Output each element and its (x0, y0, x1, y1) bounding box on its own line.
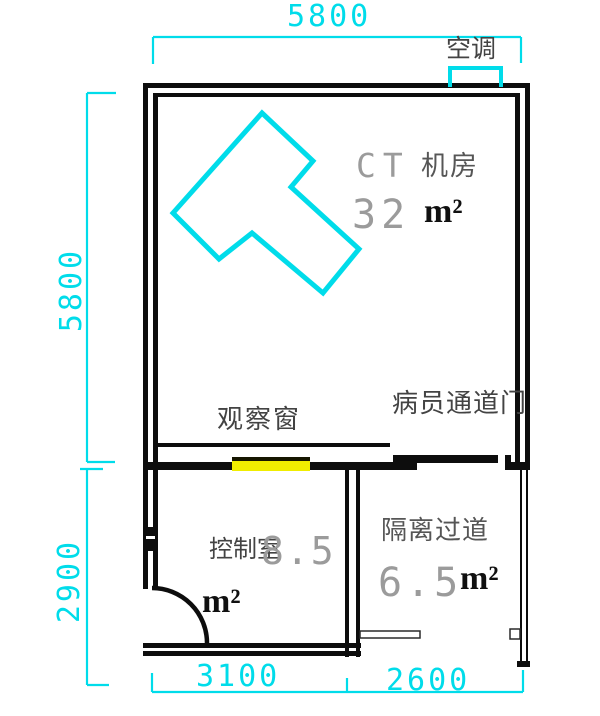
ct-room-area-unit: m² (424, 195, 463, 229)
floor-plan: 5800 5800 2900 3100 2600 空调 CT 机房 32 m² … (0, 0, 600, 716)
corridor-area-value: 6.5 (378, 563, 462, 603)
wall-top-outer (143, 83, 530, 88)
observation-window-glass (232, 461, 310, 471)
wall-control-corridor-left-line (345, 466, 349, 657)
ct-machine-outline (173, 113, 359, 293)
wall-divider-top-line (153, 443, 390, 447)
corridor-area-unit: m² (460, 562, 499, 596)
ct-room-area-value: 32 (352, 195, 410, 235)
ct-room-name-cn: 机房 (421, 153, 479, 180)
dim-line-left-upper (87, 93, 116, 462)
corridor-name: 隔离过道 (381, 517, 489, 543)
dim-bottom-left-value: 3100 (196, 662, 280, 692)
air-conditioner-label: 空调 (446, 37, 496, 62)
wall-bottom-inner (143, 651, 361, 656)
corridor-wall-inner-line (526, 470, 528, 663)
observation-window (232, 457, 310, 471)
wall-bottom-outer (143, 643, 361, 648)
wall-corner-bracket (505, 462, 530, 470)
control-room-door-arc (152, 588, 207, 643)
left-wall-marker-gap (146, 536, 155, 539)
dim-left-lower-value: 2900 (55, 519, 85, 643)
wall-left-inner (153, 93, 158, 589)
corridor-wall-end-cap (517, 661, 530, 667)
dim-left-upper-value: 5800 (57, 228, 87, 352)
corridor-wall-notch (510, 629, 520, 639)
dim-bottom-right-value: 2600 (386, 666, 470, 696)
patient-door-label: 病员通道门 (392, 390, 527, 416)
observation-window-frame-line (232, 457, 310, 461)
ct-room-name-en: CT (356, 149, 410, 182)
wall-left-outer (143, 83, 148, 589)
control-room-area-unit: m² (202, 585, 241, 619)
patient-door-leaf (393, 455, 498, 463)
control-room-area-value: 8.5 (261, 532, 336, 570)
observation-window-label: 观察窗 (217, 406, 301, 432)
wall-control-corridor-right-line (356, 466, 360, 657)
wall-top-inner (153, 93, 520, 97)
plan-drawing (0, 0, 600, 716)
corridor-threshold (360, 631, 420, 638)
dim-top-value: 5800 (287, 2, 371, 32)
